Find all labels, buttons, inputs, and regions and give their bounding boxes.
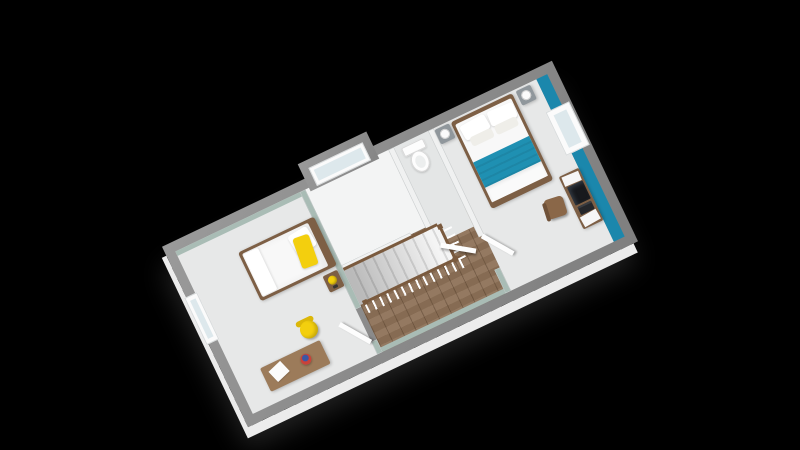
floorplan-stage — [0, 0, 800, 450]
floorplan — [162, 61, 638, 427]
